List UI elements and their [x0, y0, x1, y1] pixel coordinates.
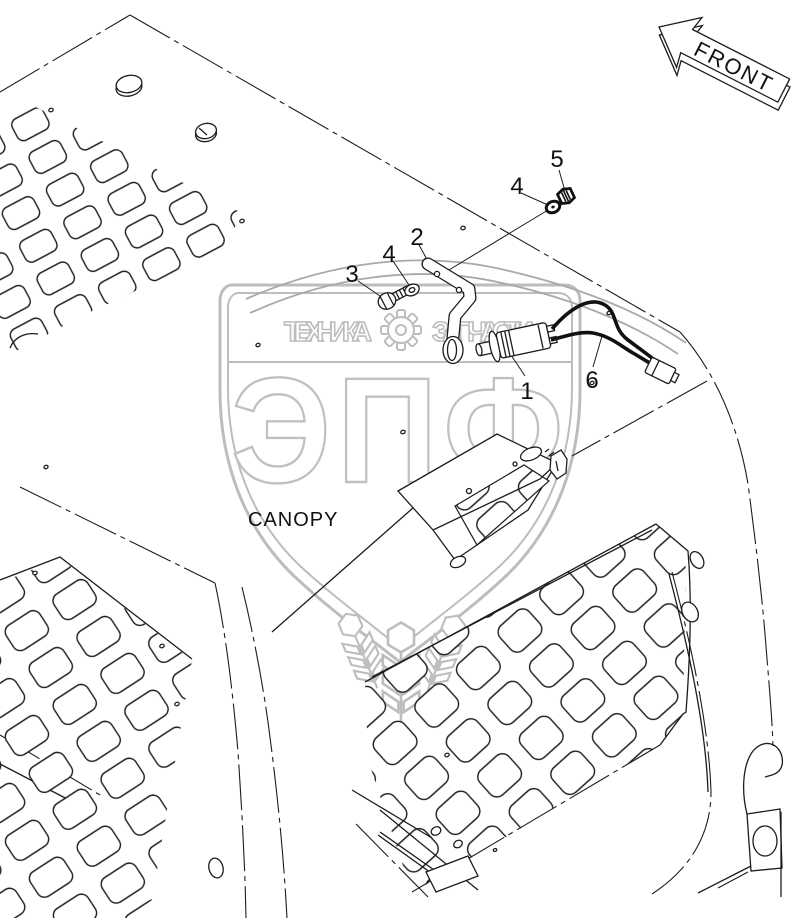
diagram-canvas: ТЕХНИКА ЗАПЧАСТИ ЭПФ	[0, 0, 801, 918]
roof-vent-holes	[115, 73, 218, 144]
callout-3: 3	[345, 261, 358, 288]
bracket-slot	[448, 340, 457, 361]
roof-phantom-line-left	[0, 15, 130, 92]
wire-connector	[645, 357, 681, 386]
frame-hole	[207, 857, 226, 880]
side-perforated-panel	[0, 558, 192, 918]
callout-2: 2	[410, 224, 423, 251]
bracket-hole	[434, 271, 439, 276]
canopy-label: CANOPY	[248, 509, 338, 531]
watermark-gear-icon	[381, 310, 421, 350]
callout-5: 5	[550, 146, 563, 173]
callout-4-front: 4	[382, 241, 395, 268]
plate-hole-small	[467, 489, 472, 494]
hook-bracket	[698, 743, 782, 897]
parts-diagram-page: ТЕХНИКА ЗАПЧАСТИ ЭПФ	[0, 0, 801, 918]
plate-hole-small	[513, 462, 517, 466]
callout-4-rear: 4	[510, 173, 523, 200]
washer-part-rear	[544, 199, 561, 215]
callout-1: 1	[520, 378, 533, 405]
watermark-tagline-left: ТЕХНИКА	[284, 316, 372, 347]
frame-hole	[687, 549, 706, 571]
roof-perforated-panel	[0, 102, 240, 352]
bracket-hole	[456, 287, 461, 292]
callout-6: 6	[585, 367, 598, 394]
pillar-line-left-b	[242, 587, 287, 918]
front-arrow: FRONT	[643, 2, 800, 124]
